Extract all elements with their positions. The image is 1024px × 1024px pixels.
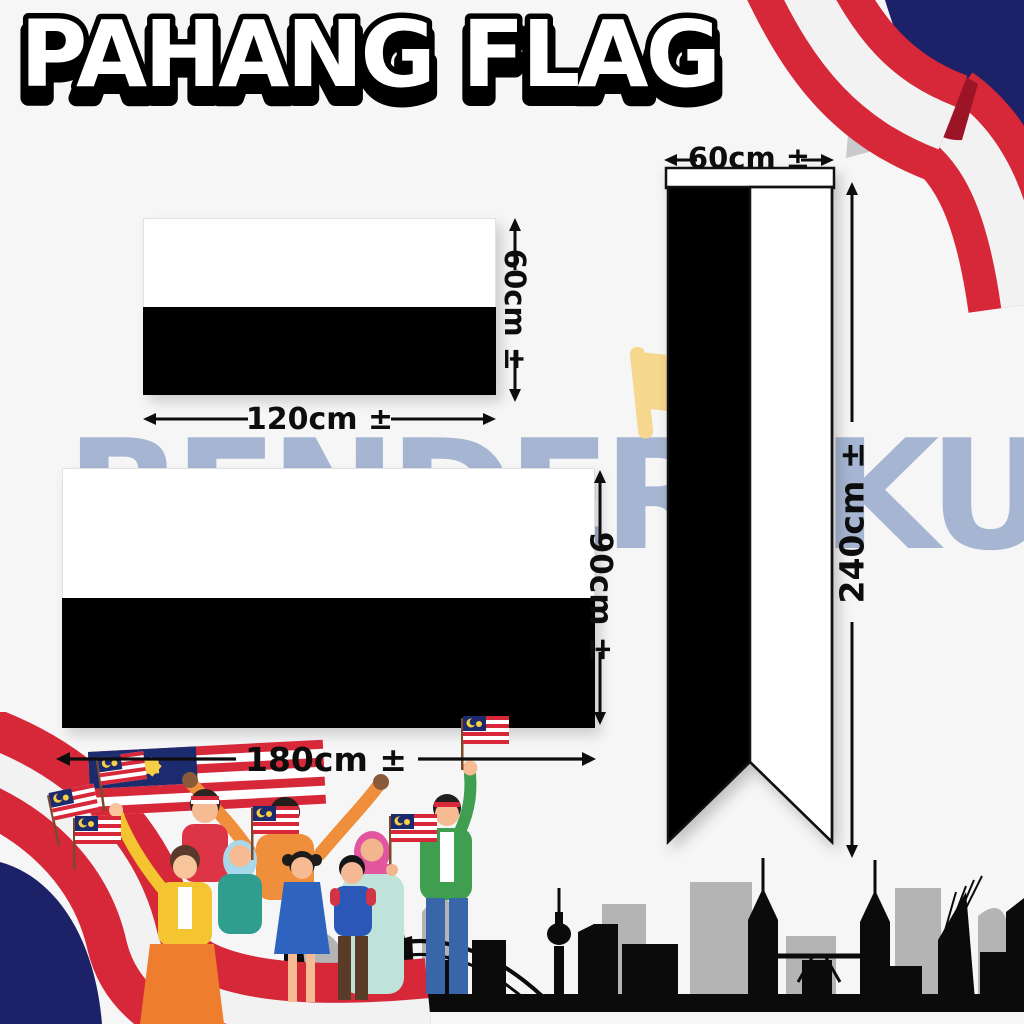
- title-text: PAHANG FLAG: [20, 1, 718, 108]
- flag-small-white-stripe: [143, 218, 496, 307]
- pahang-flag-large: [62, 468, 595, 728]
- pahang-flag-vertical: [660, 158, 840, 858]
- large-height-label: 90cm ±: [582, 542, 618, 652]
- poster-canvas: BENDERAKU PAHANG FLAG PAHANG FLAG: [0, 0, 1024, 1024]
- flag-large-black-stripe: [62, 598, 595, 728]
- large-height-value: 90cm ±: [582, 532, 618, 663]
- flag-vertical-white-half: [750, 187, 832, 842]
- person-blue-hijab-woman: [218, 840, 262, 934]
- poster-title: PAHANG FLAG PAHANG FLAG: [10, 0, 770, 128]
- vertical-width-label: 60cm ±: [664, 141, 834, 175]
- small-height-label: 60cm ±: [497, 252, 533, 368]
- pahang-flag-small: [143, 218, 496, 395]
- vertical-height-label: 240cm ±: [830, 432, 874, 612]
- flag-small-black-stripe: [143, 307, 496, 396]
- small-height-value: 60cm ±: [498, 249, 532, 371]
- large-width-label: 180cm ±: [56, 740, 596, 779]
- flag-vertical-black-half: [668, 187, 750, 842]
- small-width-label: 120cm ±: [143, 402, 496, 437]
- vertical-height-value: 240cm ±: [833, 441, 872, 603]
- flag-large-white-stripe: [62, 468, 595, 598]
